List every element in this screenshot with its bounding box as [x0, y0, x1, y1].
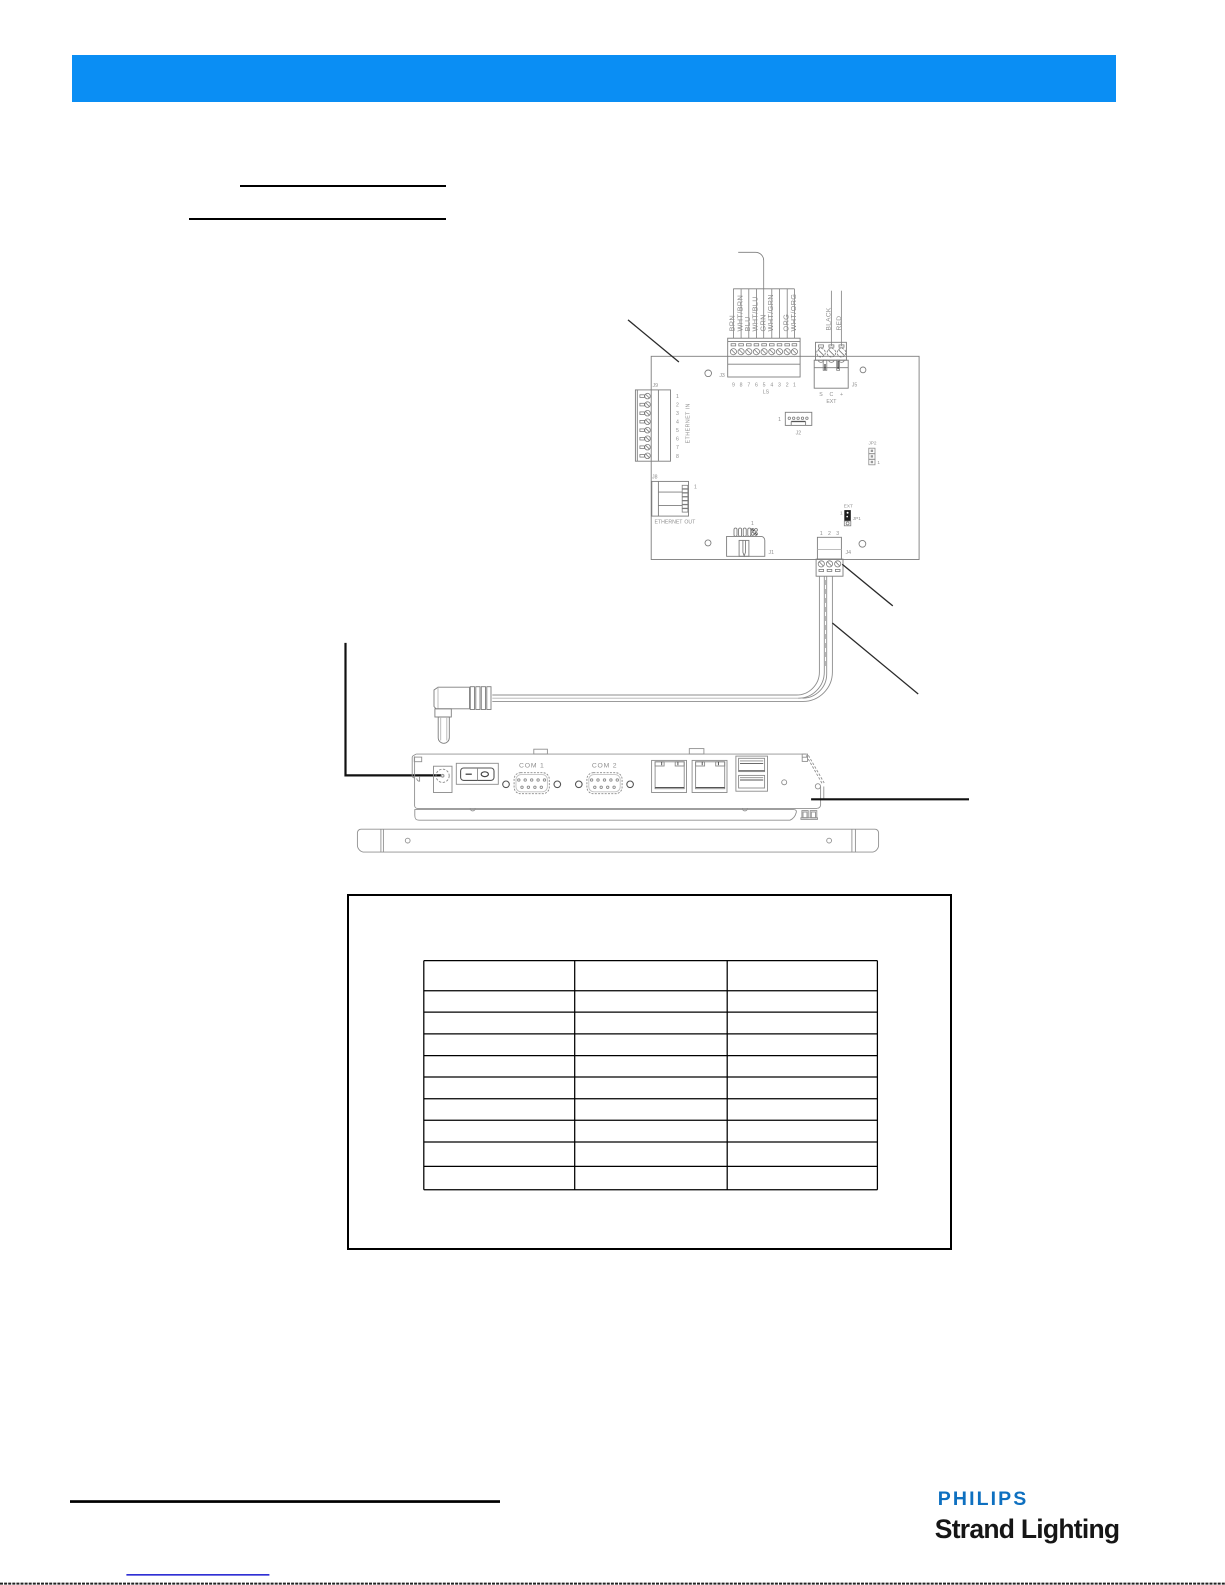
svg-text:COM 2: COM 2	[592, 762, 618, 769]
svg-text:COM 1: COM 1	[519, 762, 545, 769]
